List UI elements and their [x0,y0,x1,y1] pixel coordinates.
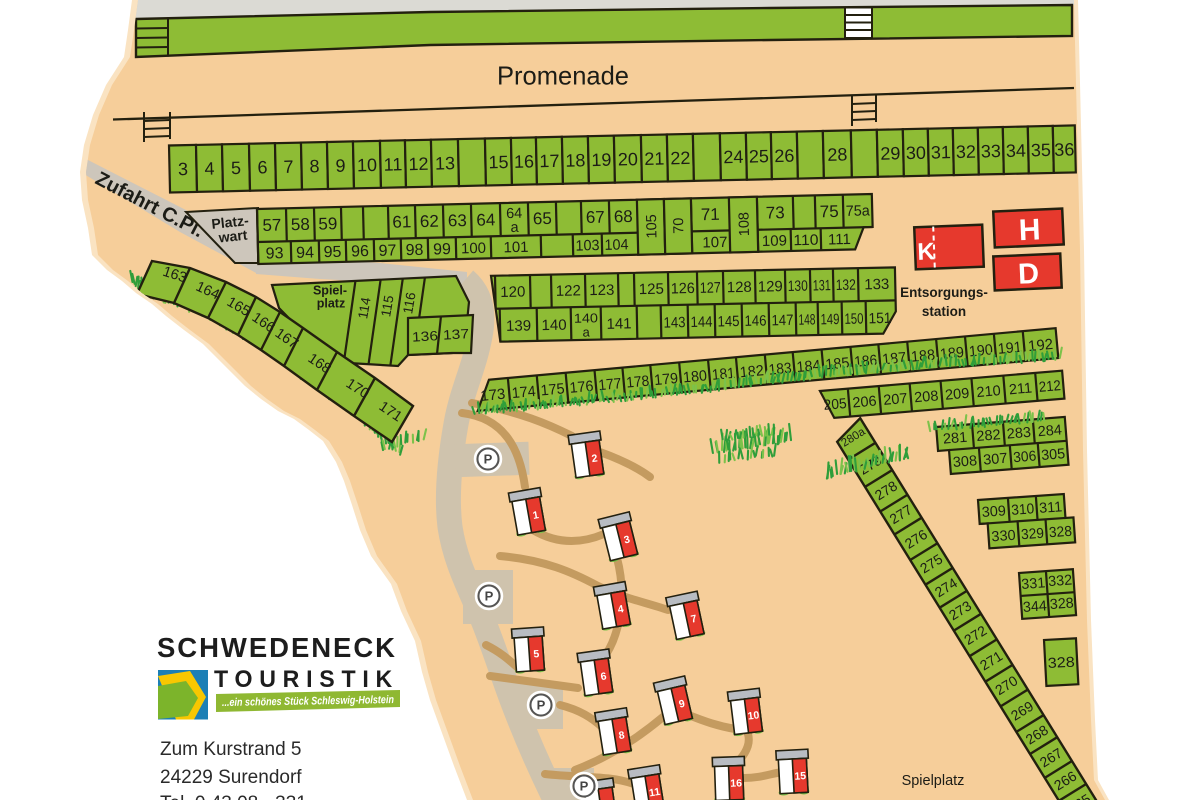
svg-text:Spiel-: Spiel- [313,284,347,298]
svg-text:207: 207 [883,391,908,409]
svg-text:96: 96 [351,243,369,260]
svg-text:144: 144 [690,314,712,331]
svg-text:208: 208 [914,388,939,406]
svg-text:125: 125 [639,281,664,299]
svg-text:71: 71 [701,205,720,224]
svg-text:105: 105 [644,214,661,239]
svg-text:101: 101 [503,239,528,257]
svg-text:24229 Surendorf: 24229 Surendorf [160,767,302,788]
svg-text:139: 139 [506,317,531,335]
svg-text:29: 29 [880,143,900,163]
svg-text:25: 25 [749,146,769,166]
svg-text:173: 173 [480,386,506,405]
svg-text:176: 176 [569,378,594,397]
svg-text:33: 33 [981,141,1001,161]
svg-text:137: 137 [443,326,470,342]
svg-text:310: 310 [1011,501,1035,519]
svg-text:3: 3 [178,159,188,179]
svg-text:63: 63 [448,211,467,230]
svg-text:308: 308 [952,453,977,471]
svg-text:149: 149 [820,311,839,328]
svg-text:11: 11 [648,786,661,800]
svg-text:P: P [537,698,546,713]
svg-text:283: 283 [1006,425,1031,443]
svg-text:9: 9 [335,156,345,176]
svg-text:311: 311 [1039,499,1063,517]
svg-text:147: 147 [771,312,793,329]
svg-text:15: 15 [794,770,806,783]
svg-text:331: 331 [1021,575,1046,593]
svg-text:174: 174 [511,383,536,402]
svg-text:127: 127 [700,279,721,296]
svg-text:K: K [917,238,936,266]
svg-text:146: 146 [744,312,766,329]
svg-text:36: 36 [1054,139,1074,159]
svg-text:21: 21 [644,149,664,169]
svg-text:58: 58 [291,215,310,234]
svg-text:16: 16 [730,777,742,789]
svg-text:H: H [1018,213,1041,247]
svg-text:110: 110 [793,232,818,250]
svg-text:95: 95 [323,244,341,261]
svg-text:5: 5 [231,158,241,178]
svg-text:328: 328 [1048,524,1072,542]
svg-text:P: P [485,589,494,604]
svg-text:180: 180 [682,367,707,386]
svg-text:328: 328 [1047,655,1075,672]
svg-text:132: 132 [836,277,856,294]
svg-text:94: 94 [296,244,314,261]
svg-text:20: 20 [618,149,638,169]
svg-text:129: 129 [758,278,783,296]
svg-text:178: 178 [626,373,650,392]
svg-text:61: 61 [392,212,411,231]
svg-text:212: 212 [1038,378,1061,396]
svg-text:211: 211 [1008,380,1032,398]
svg-text:131: 131 [813,277,831,294]
svg-text:128: 128 [727,279,752,297]
svg-text:75a: 75a [846,202,871,220]
svg-text:145: 145 [717,313,739,330]
svg-text:65: 65 [533,209,552,228]
svg-text:100: 100 [461,240,486,258]
svg-text:22: 22 [670,148,690,168]
svg-text:306: 306 [1013,448,1037,466]
svg-text:107: 107 [702,234,727,252]
svg-text:133: 133 [864,276,889,294]
svg-text:120: 120 [500,284,525,302]
svg-text:24: 24 [723,147,743,167]
svg-text:30: 30 [906,143,926,163]
svg-text:329: 329 [1021,526,1045,544]
svg-text:59: 59 [318,214,337,233]
svg-text:307: 307 [983,451,1008,469]
svg-text:5: 5 [533,648,540,660]
svg-text:143: 143 [663,314,685,331]
svg-text:P: P [580,779,589,794]
svg-text:126: 126 [671,280,695,297]
svg-text:70: 70 [671,217,687,234]
svg-text:19: 19 [591,150,611,170]
svg-text:17: 17 [539,151,559,171]
svg-text:64: 64 [476,210,495,229]
svg-text:104: 104 [604,236,628,254]
svg-text:11: 11 [383,154,402,174]
svg-text:98: 98 [405,242,423,259]
svg-text:Promenade: Promenade [497,60,629,90]
svg-text:62: 62 [420,212,439,231]
svg-text:140: 140 [574,310,598,325]
svg-text:206: 206 [852,394,877,412]
svg-text:Spielplatz: Spielplatz [902,773,965,789]
svg-text:a: a [582,324,590,339]
svg-text:209: 209 [945,386,970,404]
svg-text:75: 75 [820,202,839,221]
svg-text:26: 26 [774,146,794,166]
svg-text:73: 73 [766,203,785,222]
svg-text:108: 108 [736,212,753,237]
svg-text:282: 282 [976,427,1001,445]
svg-text:28: 28 [827,144,847,164]
svg-text:191: 191 [997,339,1022,358]
svg-text:148: 148 [798,311,815,328]
svg-text:281: 281 [942,430,967,448]
svg-text:6: 6 [257,157,267,177]
svg-text:122: 122 [556,282,581,300]
svg-text:181: 181 [711,365,735,384]
svg-text:D: D [1017,258,1039,291]
svg-text:station: station [922,304,966,319]
svg-text:Zum Kurstrand 5: Zum Kurstrand 5 [160,739,302,760]
svg-text:344: 344 [1022,598,1047,616]
svg-text:4: 4 [204,158,214,178]
svg-text:130: 130 [788,278,808,295]
svg-text:35: 35 [1031,140,1051,160]
svg-text:93: 93 [265,245,283,262]
svg-text:332: 332 [1048,573,1073,591]
svg-text:150: 150 [844,310,863,327]
svg-text:57: 57 [262,216,281,235]
svg-text:a: a [510,220,519,236]
svg-text:140: 140 [541,317,566,335]
svg-text:16: 16 [514,151,534,171]
svg-text:136: 136 [412,328,439,344]
svg-text:68: 68 [614,207,633,226]
svg-text:P: P [484,452,493,467]
svg-text:10: 10 [747,709,760,722]
svg-text:18: 18 [565,150,585,170]
svg-text:309: 309 [981,503,1006,521]
svg-text:305: 305 [1041,446,1066,464]
svg-text:13: 13 [435,153,455,173]
svg-text:151: 151 [868,310,891,327]
svg-text:SCHWEDENECK: SCHWEDENECK [157,632,397,663]
svg-text:Tel. 0 43 08 - 331: Tel. 0 43 08 - 331 [160,793,307,800]
svg-text:141: 141 [606,315,631,333]
svg-text:99: 99 [433,241,451,258]
svg-text:TOURISTIK: TOURISTIK [214,666,399,693]
svg-text:Entsorgungs-: Entsorgungs- [900,285,988,300]
svg-text:15: 15 [488,152,508,172]
svg-text:109: 109 [762,232,787,250]
svg-text:205: 205 [823,396,847,414]
svg-text:32: 32 [956,142,976,162]
svg-text:284: 284 [1037,422,1062,440]
svg-text:330: 330 [991,528,1016,546]
svg-text:123: 123 [589,282,614,300]
svg-text:wart: wart [217,227,249,246]
svg-text:platz: platz [317,297,345,311]
svg-text:97: 97 [378,242,396,259]
svg-text:328: 328 [1049,595,1074,613]
svg-text:10: 10 [357,155,377,175]
svg-text:7: 7 [283,157,293,177]
svg-text:210: 210 [976,383,1001,401]
svg-text:34: 34 [1006,141,1026,161]
svg-text:111: 111 [828,231,851,249]
svg-text:67: 67 [586,208,605,227]
svg-text:31: 31 [931,142,951,162]
svg-text:103: 103 [575,237,599,255]
svg-text:8: 8 [309,156,319,176]
svg-text:12: 12 [408,154,428,174]
